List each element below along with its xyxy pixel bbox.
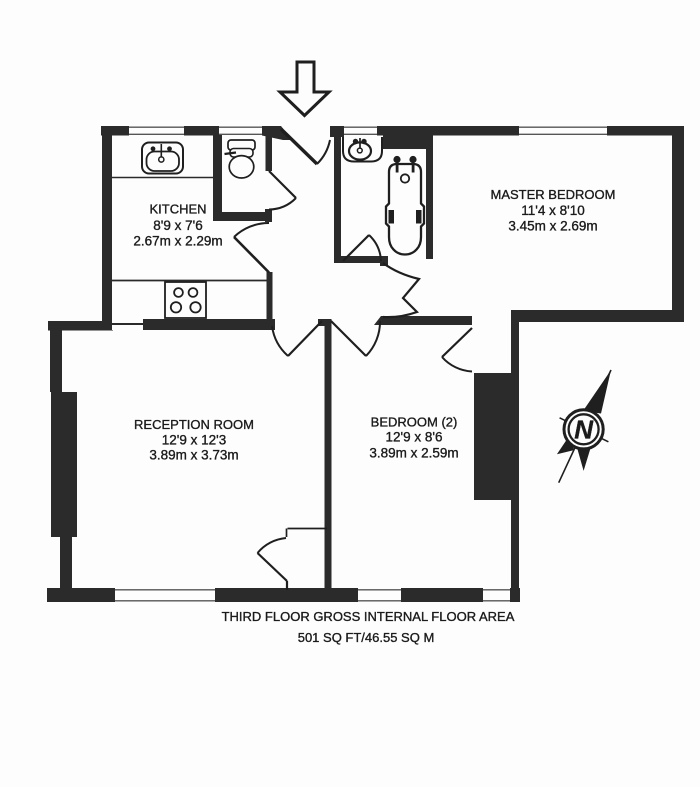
svg-text:501 SQ FT/46.55 SQ M: 501 SQ FT/46.55 SQ M (298, 630, 435, 645)
svg-text:3.89m x 2.59m: 3.89m x 2.59m (369, 446, 458, 461)
svg-text:12'9 x 12'3: 12'9 x 12'3 (162, 433, 226, 448)
svg-text:MASTER BEDROOM: MASTER BEDROOM (491, 187, 616, 202)
svg-text:KITCHEN: KITCHEN (149, 202, 206, 217)
svg-text:THIRD FLOOR GROSS INTERNAL FLO: THIRD FLOOR GROSS INTERNAL FLOOR AREA (222, 609, 515, 624)
svg-text:BEDROOM (2): BEDROOM (2) (371, 415, 458, 430)
svg-text:8'9 x 7'6: 8'9 x 7'6 (153, 218, 202, 233)
svg-text:2.67m x 2.29m: 2.67m x 2.29m (133, 234, 222, 249)
svg-text:N: N (574, 415, 594, 445)
svg-text:3.45m x 2.69m: 3.45m x 2.69m (508, 219, 597, 234)
svg-text:12'9 x 8'6: 12'9 x 8'6 (386, 430, 443, 445)
svg-text:11'4 x 8'10: 11'4 x 8'10 (521, 203, 584, 218)
svg-text:RECEPTION ROOM: RECEPTION ROOM (134, 417, 254, 432)
svg-text:3.89m x 3.73m: 3.89m x 3.73m (149, 448, 238, 463)
